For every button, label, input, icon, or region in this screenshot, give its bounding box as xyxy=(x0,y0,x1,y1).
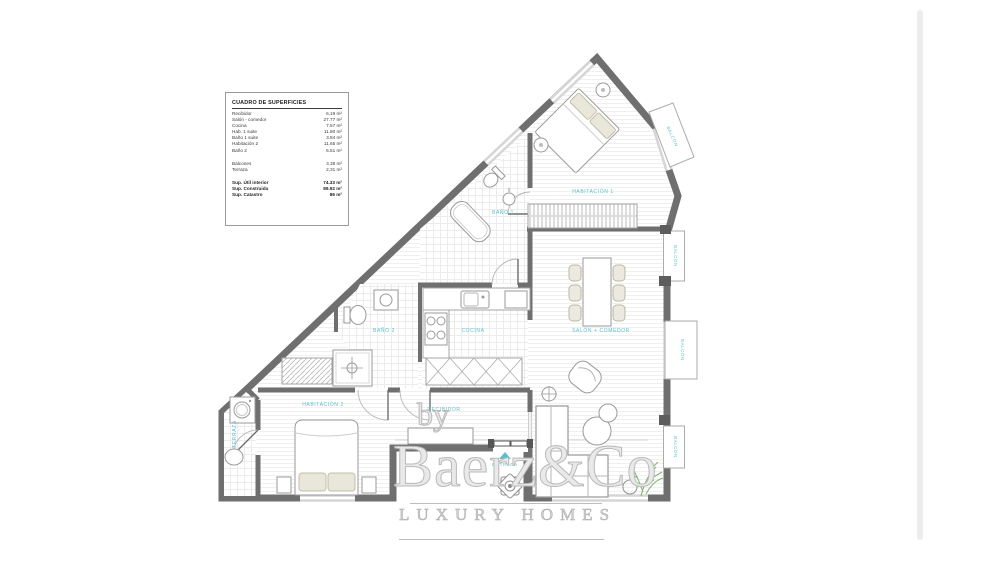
nightstand-2b xyxy=(362,477,376,493)
shower xyxy=(333,350,372,386)
compass-rosette xyxy=(497,473,522,498)
vertical-scrollbar[interactable] xyxy=(917,10,923,540)
table-total-row: Sup. Catastro86 m² xyxy=(232,192,342,198)
nightstand-2a xyxy=(277,477,291,493)
label-balcon-3: BALCÓN xyxy=(680,339,685,361)
sideboard xyxy=(408,428,473,444)
floorplan-page: HABITACIÓN 1 BAÑO 1 SALÓN + COMEDOR COCI… xyxy=(0,0,1000,563)
washing-machine xyxy=(230,397,255,423)
sink-2 xyxy=(374,290,398,310)
dining-table xyxy=(583,258,611,326)
entrada-arrow-icon xyxy=(499,452,511,459)
toilet-2 xyxy=(344,306,366,325)
surface-table: CUADRO DE SUPERFICIES Recibidor6.19 m² S… xyxy=(225,92,349,226)
label-recibidor: RECIBIDOR xyxy=(427,407,460,413)
label-habitacion-2: HABITACIÓN 2 xyxy=(302,401,344,408)
sink-1 xyxy=(503,193,515,205)
label-entrada: ENTRADA xyxy=(492,462,518,467)
label-bano-1: BAÑO 1 xyxy=(492,209,514,216)
basin xyxy=(225,449,243,465)
wardrobe-2 xyxy=(282,358,332,384)
label-cocina: COCINA xyxy=(461,328,484,334)
floorplan-drawing: HABITACIÓN 1 BAÑO 1 SALÓN + COMEDOR COCI… xyxy=(0,0,1000,563)
label-salon-comedor: SALÓN + COMEDOR xyxy=(572,327,630,334)
kitchen-cabinet xyxy=(426,358,522,385)
coffee-table-small xyxy=(599,404,617,422)
label-terraza: TERRAZA xyxy=(232,420,238,448)
label-balcon-4: BALCÓN xyxy=(673,436,678,458)
label-bano-2: BAÑO 2 xyxy=(373,327,395,334)
label-balcon-2: BALCÓN xyxy=(673,245,678,267)
surface-table-title: CUADRO DE SUPERFICIES xyxy=(232,100,342,109)
label-habitacion-1: HABITACIÓN 1 xyxy=(572,188,614,195)
